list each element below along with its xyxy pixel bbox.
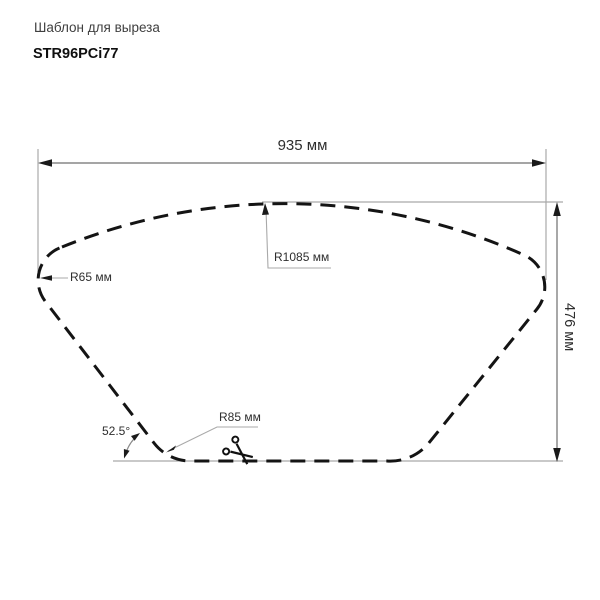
side-angle-label: 52.5° [102,425,130,438]
scissors-ring [231,435,239,443]
leader-r85-arrow-icon [166,445,176,452]
top-radius-label: R1085 мм [274,251,329,264]
model-number: STR96PCi77 [33,47,118,63]
width-dimension-label: 935 мм [260,138,345,155]
arrow-down-icon [553,448,561,462]
bottom-radius-label: R85 мм [219,411,261,424]
dimension-width [38,159,546,166]
arrow-up-icon [553,202,561,216]
scissors-icon [222,435,257,468]
cutout-template-page: Шаблон для выреза STR96PCi77 935 мм 476 … [0,0,600,600]
cutout-outline [38,204,545,461]
cutout-diagram [0,0,600,600]
arrow-right-icon [532,159,546,166]
leader-r65 [40,275,68,281]
leader-r85-line [168,427,258,451]
angle-arrow-bottom-icon [124,449,130,459]
scissors-ring [222,447,230,455]
leader-r85 [166,427,258,453]
corner-radius-label: R65 мм [70,271,112,284]
page-subtitle: Шаблон для выреза [34,21,160,36]
extension-lines [38,149,563,461]
leader-r65-arrow-icon [40,275,52,281]
arrow-left-icon [38,159,52,166]
height-dimension-label: 476 мм [560,303,576,351]
angle-arrow-top-icon [131,433,140,441]
